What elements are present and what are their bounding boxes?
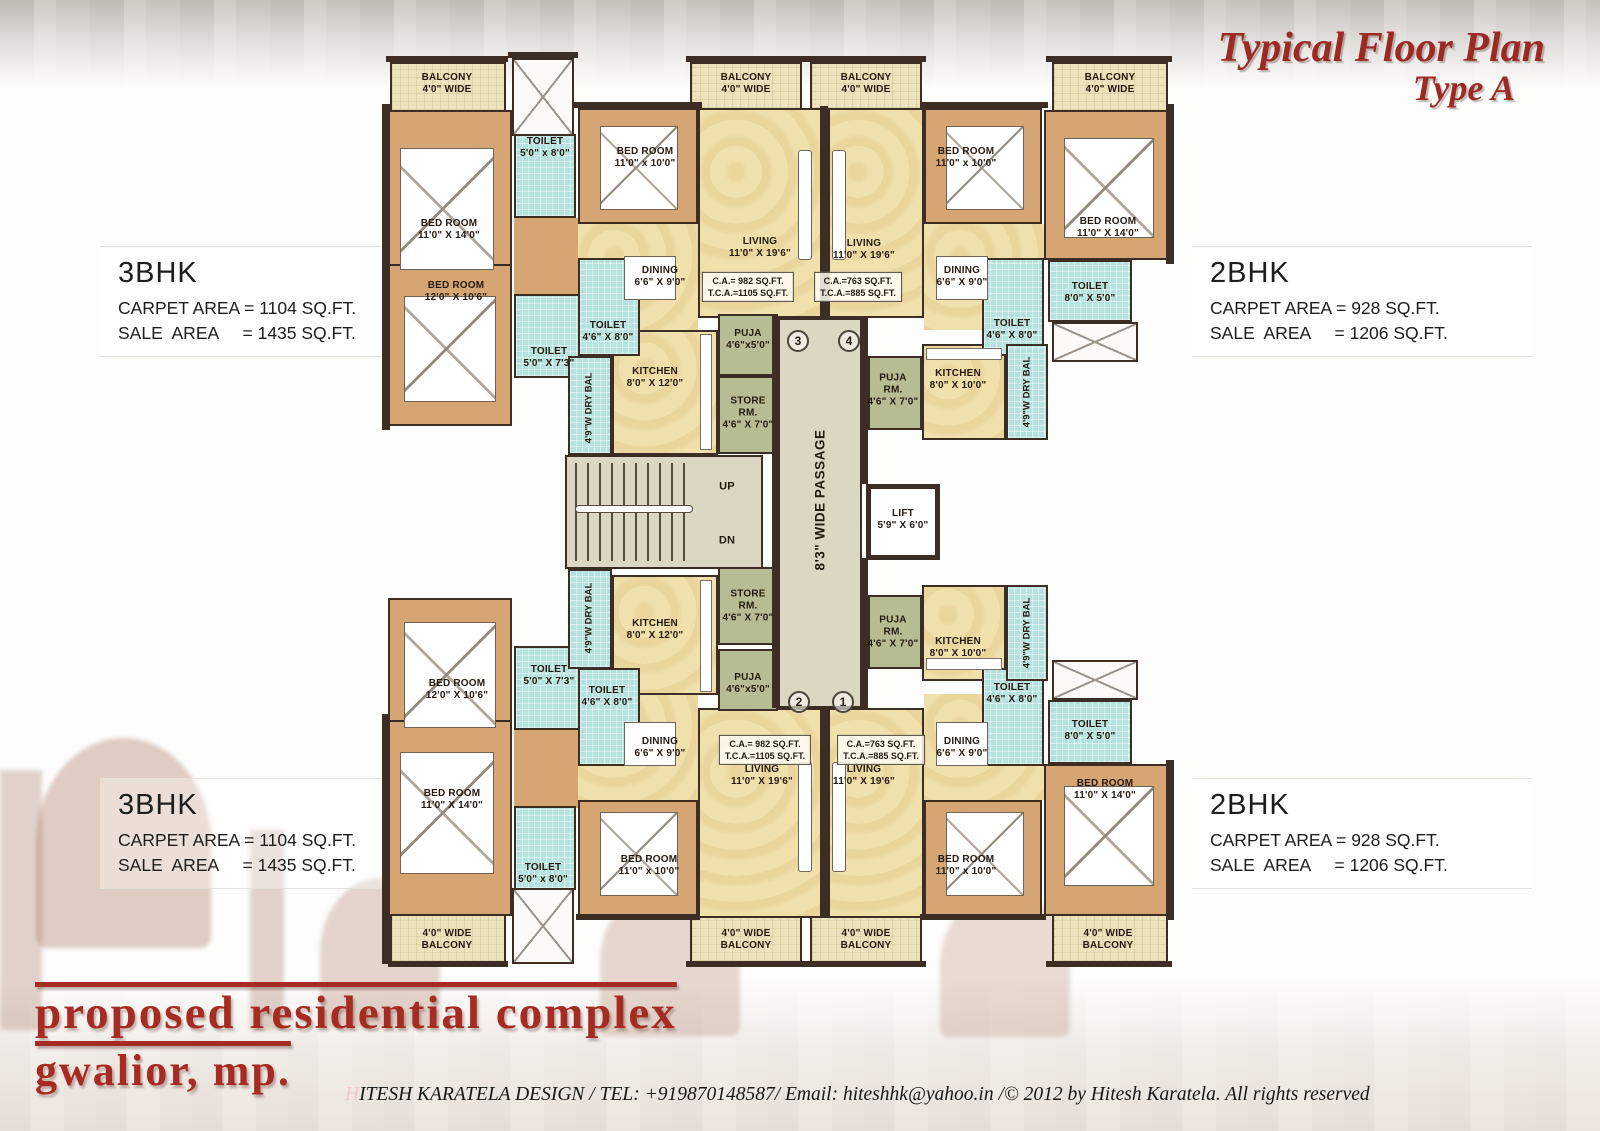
- room-dims: 11'0" X 14'0": [418, 230, 480, 241]
- room-name: KITCHEN: [935, 368, 981, 379]
- room-name: KITCHEN: [632, 366, 678, 377]
- room-dims: 11'0" X 19'6": [833, 250, 895, 261]
- label-kitchen: KITCHEN8'0" X 10'0": [930, 368, 987, 392]
- room-dims: 12'0" X 10'6": [425, 292, 487, 303]
- room-dims: 11'0" X 19'6": [729, 248, 791, 259]
- label-toilet: TOILET5'0" X 7'3": [524, 664, 575, 688]
- carpet-area: CARPET AREA = 928 SQ.FT.: [1210, 298, 1532, 319]
- room-dims: 6'6" X 9'0": [937, 748, 988, 759]
- label-living: LIVING11'0" X 19'6": [833, 238, 895, 262]
- room-name: BED ROOM: [617, 146, 674, 157]
- label-bedroom: BED ROOM11'0" x 10'0": [936, 146, 997, 170]
- room-dims: 4'0" WIDE: [842, 84, 891, 95]
- label-puja: PUJA4'6"x5'0": [726, 328, 770, 352]
- room-dims: 5'9" X 6'0": [878, 520, 929, 531]
- wall: [382, 714, 390, 964]
- kitchen-counter-icon: [926, 348, 1002, 360]
- duct-shaft: [512, 888, 574, 964]
- room-name: BED ROOM: [429, 678, 486, 689]
- sofa-icon: [798, 150, 812, 260]
- room-dims: 6'6" X 9'0": [937, 277, 988, 288]
- label-bedroom: BED ROOM11'0" x 10'0": [619, 854, 680, 878]
- room-dims: 4'0" WIDE: [1086, 84, 1135, 95]
- room-dims: 4'6" X 8'0": [987, 694, 1038, 705]
- room-name: PUJA: [734, 328, 761, 339]
- label-puja-room: PUJARM.4'6" X 7'0": [868, 372, 919, 407]
- label-bedroom: BED ROOM11'0" X 14'0": [421, 788, 483, 812]
- room-name: BALCONY: [721, 72, 772, 83]
- flat-number-1: 1: [832, 691, 854, 713]
- copyright-line: HITESH KARATELA DESIGN / TEL: +919870148…: [345, 1084, 1370, 1106]
- room-dims: 12'0" X 10'6": [426, 690, 488, 701]
- title-line1: Typical Floor Plan: [1218, 26, 1545, 70]
- room-name: PUJA: [734, 672, 761, 683]
- label-stairs-dn: DN: [719, 535, 735, 548]
- wall: [920, 914, 1046, 920]
- label-living: LIVING11'0" X 19'6": [729, 236, 791, 260]
- room-name: BED ROOM: [428, 280, 485, 291]
- room-dims: 4'0" WIDE: [842, 928, 891, 939]
- flat-number-4: 4: [838, 330, 860, 352]
- label-dry-balcony: 4'9"W DRY BAL: [1022, 598, 1033, 669]
- room-dims: 8'0" X 5'0": [1065, 293, 1116, 304]
- unit-name: 2BHK: [1210, 257, 1532, 290]
- wall: [388, 961, 508, 967]
- room-dims: 6'6" X 9'0": [635, 277, 686, 288]
- label-bedroom: BED ROOM11'0" X 14'0": [1074, 778, 1136, 802]
- room-name2: RM.: [739, 600, 758, 611]
- label-balcony: 4'0" WIDEBALCONY: [721, 928, 772, 952]
- room-dims: 5'0" X 7'3": [524, 676, 575, 687]
- room-corridor: [514, 218, 578, 296]
- room-name: TOILET: [531, 346, 568, 357]
- wall: [1166, 760, 1174, 920]
- project-title: proposed residential complex gwalior, mp…: [35, 984, 677, 1098]
- label-dry-balcony: 4'9"W DRY BAL: [584, 583, 595, 654]
- label-balcony: 4'0" WIDEBALCONY: [422, 928, 473, 952]
- room-dims: 6'6" X 9'0": [635, 748, 686, 759]
- room-dims: 8'0" X 12'0": [627, 630, 684, 641]
- room-name: STORE: [730, 395, 765, 406]
- room-dims: 8'0" X 10'0": [930, 380, 987, 391]
- room-corridor: [514, 730, 578, 808]
- stair-rail-icon: [575, 505, 693, 513]
- room-name: KITCHEN: [632, 618, 678, 629]
- room-dims: 11'0" X 19'6": [731, 776, 793, 787]
- room-name: BALCONY: [422, 72, 473, 83]
- room-dims: 11'0" x 10'0": [619, 866, 680, 877]
- label-puja-room: PUJARM.4'6" X 7'0": [868, 614, 919, 649]
- room-name: DINING: [944, 265, 980, 276]
- label-dining: DINING6'6" X 9'0": [635, 736, 686, 760]
- label-kitchen: KITCHEN8'0" X 10'0": [930, 636, 987, 660]
- label-bedroom: BED ROOM12'0" X 10'6": [425, 280, 487, 304]
- total-area-note: T.C.A.=885 SQ.FT.: [820, 288, 896, 298]
- room-dims: 8'0" X 12'0": [627, 378, 684, 389]
- area-note-3bhk: C.A.= 982 SQ.FT.T.C.A.=1105 SQ.FT.: [702, 272, 794, 302]
- room-name: LIFT: [892, 508, 914, 519]
- label-balcony: BALCONY4'0" WIDE: [721, 72, 772, 96]
- duct-shaft: [1052, 322, 1138, 362]
- room-name: TOILET: [531, 664, 568, 675]
- room-name: TOILET: [994, 682, 1031, 693]
- title-line2: Type A: [1218, 70, 1515, 108]
- room-name: BALCONY: [841, 72, 892, 83]
- area-note-2bhk: C.A.=763 SQ.FT.T.C.A.=885 SQ.FT.: [814, 272, 902, 302]
- room-name: BALCONY: [721, 940, 772, 951]
- label-puja: PUJA4'6"x5'0": [726, 672, 770, 696]
- label-bedroom: BED ROOM11'0" x 10'0": [936, 854, 997, 878]
- carpet-area-note: C.A.=763 SQ.FT.: [824, 276, 893, 286]
- label-dry-balcony: 4'9"W DRY BAL: [1022, 357, 1033, 428]
- wall: [576, 914, 700, 920]
- flat-number-2: 2: [788, 691, 810, 713]
- room-dims: 4'6" X 7'0": [723, 612, 774, 623]
- room-name: TOILET: [590, 320, 627, 331]
- total-area-note: T.C.A.=885 SQ.FT.: [843, 751, 919, 761]
- room-name: BALCONY: [841, 940, 892, 951]
- room-name: TOILET: [527, 136, 564, 147]
- wall: [386, 56, 508, 62]
- label-bedroom: BED ROOM11'0" X 14'0": [418, 218, 480, 242]
- wall: [1046, 56, 1172, 62]
- carpet-area-note: C.A.= 982 SQ.FT.: [712, 276, 783, 286]
- room-dims: 11'0" X 19'6": [833, 776, 895, 787]
- room-name: BED ROOM: [421, 218, 478, 229]
- label-toilet: TOILET5'0" x 8'0": [520, 136, 570, 160]
- label-toilet: TOILET4'6" X 8'0": [987, 682, 1038, 706]
- room-dims: 4'6" X 8'0": [987, 330, 1038, 341]
- room-dims: 4'0" WIDE: [722, 84, 771, 95]
- room-dims: 11'0" x 10'0": [936, 158, 997, 169]
- room-dims: 4'6"x5'0": [726, 684, 770, 695]
- label-stairs-up: UP: [719, 481, 735, 494]
- project-title-line1: proposed residential complex: [35, 984, 677, 1043]
- room-name: DINING: [944, 736, 980, 747]
- room-dims: 4'6" X 8'0": [583, 332, 634, 343]
- kitchen-counter-icon: [700, 580, 712, 692]
- wall: [382, 104, 390, 430]
- room-dims: 11'0" X 14'0": [1077, 228, 1139, 239]
- area-note-2bhk: C.A.=763 SQ.FT.T.C.A.=885 SQ.FT.: [837, 735, 925, 765]
- room-name2: RM.: [739, 407, 758, 418]
- room-name: BALCONY: [422, 940, 473, 951]
- total-area-note: T.C.A.=1105 SQ.FT.: [708, 288, 788, 298]
- sofa-icon: [798, 762, 812, 872]
- room-name: DINING: [642, 736, 678, 747]
- room-name: STORE: [730, 588, 765, 599]
- room-name: BED ROOM: [1080, 216, 1137, 227]
- label-passage: 8'3" WIDE PASSAGE: [813, 430, 828, 571]
- total-area-note: T.C.A.=1105 SQ.FT.: [725, 751, 805, 761]
- room-name: TOILET: [1072, 719, 1109, 730]
- room-name: BED ROOM: [424, 788, 481, 799]
- flat-number-3: 3: [787, 330, 809, 352]
- label-toilet: TOILET8'0" X 5'0": [1065, 719, 1116, 743]
- footer-initial: H: [345, 1084, 359, 1105]
- label-bedroom: BED ROOM12'0" X 10'6": [426, 678, 488, 702]
- page-title: Typical Floor Plan Type A: [1218, 26, 1545, 108]
- room-name: TOILET: [994, 318, 1031, 329]
- label-balcony: BALCONY4'0" WIDE: [1085, 72, 1136, 96]
- room-dims: 4'6" X 8'0": [582, 697, 633, 708]
- label-balcony: BALCONY4'0" WIDE: [841, 72, 892, 96]
- room-dims: 4'0" WIDE: [1084, 928, 1133, 939]
- label-store-room: STORERM.4'6" X 7'0": [723, 588, 774, 623]
- room-dims: 11'0" x 10'0": [615, 158, 676, 169]
- wall: [1166, 104, 1174, 264]
- wall: [574, 102, 702, 108]
- room-dims: 4'6" X 7'0": [868, 396, 919, 407]
- bed-icon: [404, 622, 496, 728]
- wall: [686, 961, 806, 967]
- wall: [806, 961, 926, 967]
- bed-icon: [404, 296, 496, 402]
- wall: [920, 102, 1048, 108]
- kitchen-counter-icon: [700, 334, 712, 450]
- room-dims: 8'0" X 5'0": [1065, 731, 1116, 742]
- info-block-2bhk-top: 2BHK CARPET AREA = 928 SQ.FT. SALE AREA …: [1192, 246, 1532, 357]
- label-toilet: TOILET4'6" X 8'0": [987, 318, 1038, 342]
- wall: [686, 56, 806, 62]
- room-name: PUJA: [879, 372, 906, 383]
- room-name2: RM.: [884, 384, 903, 395]
- label-balcony: BALCONY4'0" WIDE: [422, 72, 473, 96]
- room-name: KITCHEN: [935, 636, 981, 647]
- room-name: DINING: [642, 265, 678, 276]
- room-name: BALCONY: [1083, 940, 1134, 951]
- area-note-3bhk: C.A.= 982 SQ.FT.T.C.A.=1105 SQ.FT.: [719, 735, 811, 765]
- duct-shaft: [512, 58, 574, 136]
- label-dry-balcony: 4'9"W DRY BAL: [584, 373, 595, 444]
- wall: [1046, 961, 1172, 967]
- room-name: LIVING: [847, 238, 882, 249]
- label-bedroom: BED ROOM11'0" X 14'0": [1077, 216, 1139, 240]
- room-dims: 4'6"x5'0": [726, 340, 770, 351]
- room-name: BED ROOM: [938, 146, 995, 157]
- label-dining: DINING6'6" X 9'0": [937, 736, 988, 760]
- info-block-2bhk-bottom: 2BHK CARPET AREA = 928 SQ.FT. SALE AREA …: [1192, 778, 1532, 889]
- room-dims: 8'0" X 10'0": [930, 648, 987, 659]
- room-dims: 5'0" x 8'0": [520, 148, 570, 159]
- label-toilet: TOILET8'0" X 5'0": [1065, 281, 1116, 305]
- room-name: LIVING: [847, 764, 882, 775]
- wall: [508, 52, 578, 58]
- sale-area: SALE AREA = 1206 SQ.FT.: [1210, 323, 1532, 344]
- room-name: BALCONY: [1085, 72, 1136, 83]
- room-name: TOILET: [1072, 281, 1109, 292]
- room-dims: 5'0" x 8'0": [518, 874, 568, 885]
- room-dims: 4'6" X 7'0": [868, 638, 919, 649]
- room-name: BED ROOM: [1077, 778, 1134, 789]
- label-balcony: 4'0" WIDEBALCONY: [1083, 928, 1134, 952]
- room-dims: 4'0" WIDE: [423, 84, 472, 95]
- label-kitchen: KITCHEN8'0" X 12'0": [627, 366, 684, 390]
- carpet-area-note: C.A.=763 SQ.FT.: [847, 739, 916, 749]
- room-name: PUJA: [879, 614, 906, 625]
- room-name: BED ROOM: [621, 854, 678, 865]
- carpet-area-note: C.A.= 982 SQ.FT.: [729, 739, 800, 749]
- room-dims: 4'0" WIDE: [423, 928, 472, 939]
- room-name2: RM.: [884, 626, 903, 637]
- bed-icon: [400, 752, 494, 874]
- kitchen-counter-icon: [926, 658, 1002, 670]
- room-name: BED ROOM: [938, 854, 995, 865]
- bed-icon: [400, 148, 494, 270]
- room-name: LIVING: [743, 236, 778, 247]
- label-toilet: TOILET5'0" X 7'3": [524, 346, 575, 370]
- room-dims: 5'0" X 7'3": [524, 358, 575, 369]
- label-living: LIVING11'0" X 19'6": [731, 764, 793, 788]
- wall: [806, 56, 926, 62]
- room-dims: 11'0" X 14'0": [1074, 790, 1136, 801]
- label-toilet: TOILET5'0" x 8'0": [518, 862, 568, 886]
- room-dims: 4'0" WIDE: [722, 928, 771, 939]
- room-dims: 11'0" x 10'0": [936, 866, 997, 877]
- footer-text: ITESH KARATELA DESIGN / TEL: +9198701485…: [359, 1084, 1370, 1105]
- wall: [772, 316, 778, 708]
- room-name: TOILET: [525, 862, 562, 873]
- label-toilet: TOILET4'6" X 8'0": [582, 685, 633, 709]
- page: Typical Floor Plan Type A 3BHK CARPET AR…: [0, 0, 1600, 1131]
- room-dims: 11'0" X 14'0": [421, 800, 483, 811]
- label-dining: DINING6'6" X 9'0": [937, 265, 988, 289]
- wall: [820, 706, 828, 918]
- label-bedroom: BED ROOM11'0" x 10'0": [615, 146, 676, 170]
- sale-area: SALE AREA = 1206 SQ.FT.: [1210, 855, 1532, 876]
- duct-shaft: [1052, 660, 1138, 700]
- room-dims: 4'6" X 7'0": [723, 419, 774, 430]
- unit-name: 2BHK: [1210, 789, 1532, 822]
- carpet-area: CARPET AREA = 928 SQ.FT.: [1210, 830, 1532, 851]
- label-lift: LIFT5'9" X 6'0": [878, 508, 929, 532]
- label-kitchen: KITCHEN8'0" X 12'0": [627, 618, 684, 642]
- label-balcony: 4'0" WIDEBALCONY: [841, 928, 892, 952]
- label-dining: DINING6'6" X 9'0": [635, 265, 686, 289]
- room-name: LIVING: [745, 764, 780, 775]
- label-store-room: STORERM.4'6" X 7'0": [723, 395, 774, 430]
- label-toilet: TOILET4'6" X 8'0": [583, 320, 634, 344]
- label-living: LIVING11'0" X 19'6": [833, 764, 895, 788]
- room-name: TOILET: [589, 685, 626, 696]
